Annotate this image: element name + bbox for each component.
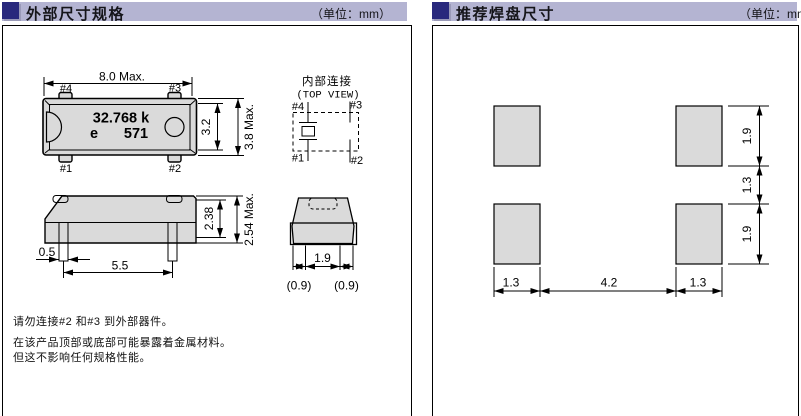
technical-drawing: 32.768 k e 571 8.0 Max. #4 #3 #1 #2 3.2 bbox=[0, 0, 801, 416]
dim-lead-gap-label: 1.9 bbox=[314, 251, 331, 265]
dim-pad-height-top-label: 1.9 bbox=[740, 127, 754, 144]
ic-pin1-label: #1 bbox=[292, 153, 304, 165]
dim-end-left-label: (0.9) bbox=[287, 279, 312, 293]
internal-connection-title: 内部连接 bbox=[302, 74, 352, 88]
side-view: 0.5 5.5 2.38 2.54 Max. bbox=[36, 193, 256, 278]
dim-pad-height-bottom-label: 1.9 bbox=[740, 225, 754, 242]
ic-pin3-label: #3 bbox=[350, 100, 362, 112]
dim-col-gap-label: 4.2 bbox=[601, 276, 618, 290]
pad-layout: 1.9 1.3 1.9 1.3 4.2 1.3 bbox=[494, 106, 769, 297]
dim-row-gap-label: 1.3 bbox=[740, 176, 754, 193]
marking-code: 571 bbox=[124, 126, 148, 142]
ic-pin2-label: #2 bbox=[351, 155, 363, 167]
internal-connection-diagram: 内部连接 (TOP VIEW) #4 #3 #1 #2 bbox=[292, 74, 363, 167]
dim-pad-width-right-label: 1.3 bbox=[690, 276, 707, 290]
top-view: 32.768 k e 571 8.0 Max. #4 #3 #1 #2 3.2 bbox=[43, 70, 256, 176]
package-outline-dashed bbox=[293, 113, 359, 152]
end-view: 1.9 (0.9) (0.9) bbox=[287, 198, 359, 293]
dim-total-height-label: 3.8 Max. bbox=[242, 104, 256, 150]
pad-bottom-right bbox=[676, 204, 722, 264]
pad-bottom-left bbox=[494, 204, 540, 264]
marking-logo: e bbox=[90, 126, 98, 142]
dim-end-right-label: (0.9) bbox=[334, 279, 359, 293]
top-view-pin4-label: #4 bbox=[60, 83, 72, 95]
ic-pin4-label: #4 bbox=[292, 101, 304, 113]
marking-frequency: 32.768 k bbox=[93, 111, 150, 127]
top-view-pin1-label: #1 bbox=[60, 163, 72, 175]
pad-top-right bbox=[676, 106, 722, 166]
top-view-pin3-label: #3 bbox=[169, 83, 181, 95]
dim-lead-span-label: 5.5 bbox=[112, 259, 129, 273]
dim-pad-width-left-label: 1.3 bbox=[503, 276, 520, 290]
top-view-pin2-label: #2 bbox=[169, 163, 181, 175]
dim-body-height-label: 3.2 bbox=[199, 118, 213, 135]
dim-side-body-height-label: 2.38 bbox=[202, 206, 216, 230]
end-view-body bbox=[292, 198, 354, 244]
crystal-element bbox=[302, 127, 315, 137]
dim-side-total-height-label: 2.54 Max. bbox=[242, 193, 256, 246]
pad-top-left bbox=[494, 106, 540, 166]
top-view-seal-circle bbox=[165, 118, 184, 137]
dim-width-label: 8.0 Max. bbox=[99, 70, 145, 84]
dim-lead-width-label: 0.5 bbox=[39, 245, 56, 259]
datasheet-page: 外部尺寸规格 （单位：mm） 推荐焊盘尺寸 （单位：mm） 请勿连接#2 和#3… bbox=[0, 0, 801, 416]
